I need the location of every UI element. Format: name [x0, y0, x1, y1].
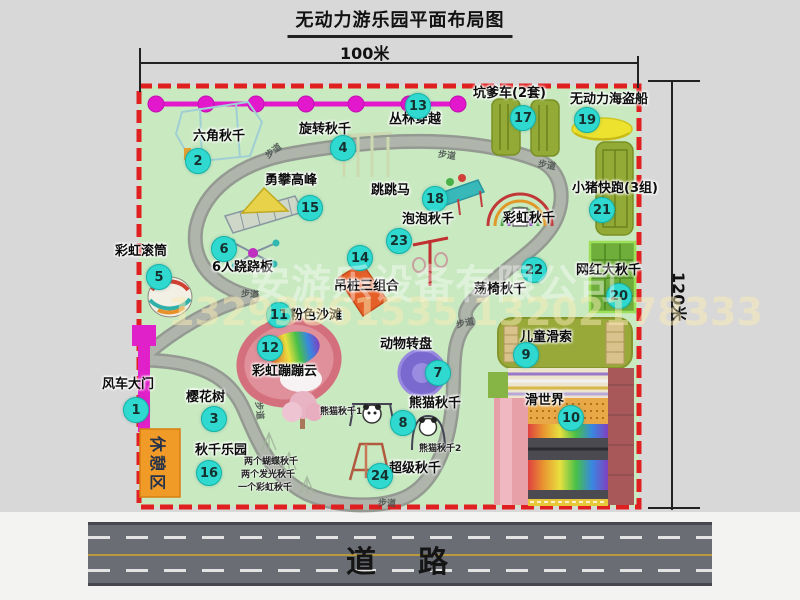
- attraction-badge-1: 1: [123, 397, 149, 423]
- climbing-peak-graphic: [225, 188, 303, 233]
- attraction-badge-4: 4: [330, 135, 356, 161]
- park-plan-page: 无动力游乐园平面布局图: [0, 0, 800, 600]
- dimension-width-label: 100米: [340, 40, 389, 64]
- attraction-badge-3: 3: [201, 406, 227, 432]
- small-note-4: 一个彩虹秋千: [238, 480, 292, 493]
- attraction-badge-23: 23: [386, 228, 412, 254]
- rest-area-label: 休憩区: [147, 436, 171, 493]
- attraction-label-3: 樱花树: [186, 391, 225, 405]
- attraction-label-12: 彩虹蹦蹦云: [252, 365, 317, 379]
- attraction-badge-10: 10: [558, 405, 584, 431]
- attraction-badge-6: 6: [211, 236, 237, 262]
- attraction-badge-21: 21: [589, 197, 615, 223]
- attraction-badge-19: 19: [574, 107, 600, 133]
- attraction-label-8: 熊猫秋千: [409, 397, 461, 411]
- attraction-badge-16: 16: [196, 460, 222, 486]
- attraction-label-24: 超级秋千: [389, 462, 441, 476]
- attraction-label-15: 勇攀高峰: [265, 174, 317, 188]
- road-label: 道 路: [88, 537, 712, 581]
- attraction-badge-9: 9: [513, 342, 539, 368]
- attraction-label-2: 六角秋千: [193, 130, 245, 144]
- attraction-label-17: 坑爹车(2套): [473, 87, 546, 101]
- attraction-label-5: 彩虹滚筒: [115, 245, 167, 259]
- small-note-3: 两个发光秋千: [241, 467, 295, 480]
- attraction-label-23: 泡泡秋千: [402, 213, 454, 227]
- small-note-1: 熊猫秋千2: [419, 441, 461, 454]
- attraction-label-1: 风车大门: [102, 378, 154, 392]
- attraction-label-10: 滑世界: [525, 394, 564, 408]
- attraction-badge-24: 24: [367, 463, 393, 489]
- attraction-badge-7: 7: [425, 360, 451, 386]
- attraction-badge-8: 8: [390, 410, 416, 436]
- attraction-label-彩虹秋千: 彩虹秋千: [503, 212, 555, 226]
- walkway-label-6: 步道: [253, 401, 268, 420]
- attraction-label-18: 跳跳马: [371, 184, 410, 198]
- watermark-phone: 13293861535 13202178333: [168, 290, 763, 334]
- slide-world-graphic: [488, 368, 634, 506]
- attraction-badge-15: 15: [297, 195, 323, 221]
- attraction-badge-12: 12: [257, 335, 283, 361]
- walkway-label-5: 步道: [378, 496, 396, 510]
- attraction-badge-18: 18: [422, 186, 448, 212]
- attraction-badge-17: 17: [510, 105, 536, 131]
- small-note-0: 熊猫秋千1: [320, 404, 362, 417]
- walkway-label-1: 步道: [437, 147, 457, 162]
- road: 道 路: [88, 522, 712, 586]
- attraction-badge-2: 2: [185, 148, 211, 174]
- attraction-badge-5: 5: [146, 264, 172, 290]
- attraction-label-16: 秋千乐园: [195, 444, 247, 458]
- attraction-label-19: 无动力海盗船: [570, 93, 648, 107]
- attraction-label-21: 小猪快跑(3组): [572, 182, 658, 196]
- attraction-badge-13: 13: [405, 93, 431, 119]
- attraction-label-7: 动物转盘: [380, 338, 432, 352]
- small-note-2: 两个蝴蝶秋千: [244, 454, 298, 467]
